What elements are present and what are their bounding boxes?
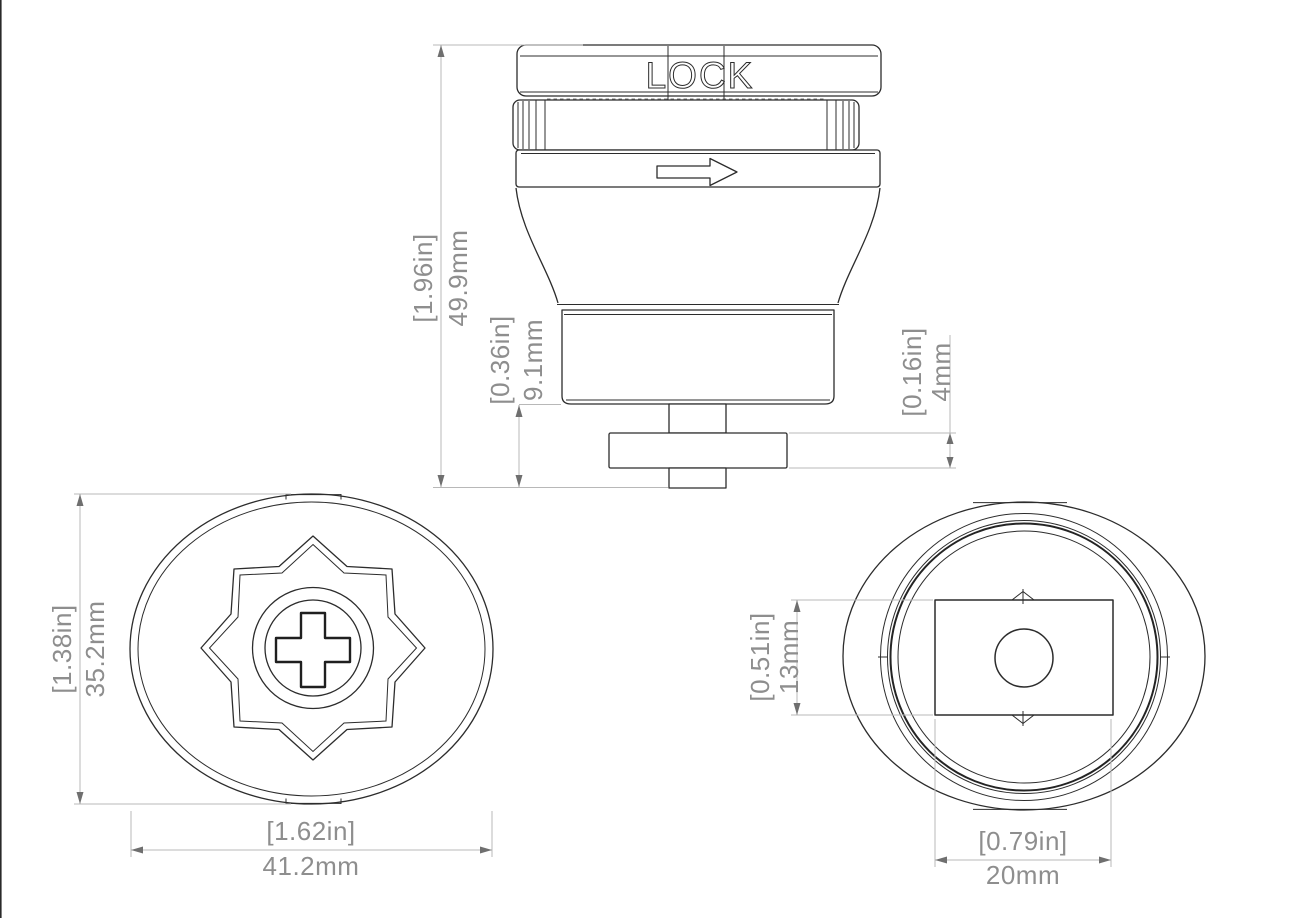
- dim-cam-thickness-mm: 4mm: [926, 342, 956, 401]
- arrow-down: [77, 792, 84, 804]
- taper-neck: [516, 188, 880, 305]
- arrow-down: [947, 457, 954, 468]
- technical-drawing-sheet: LOCK: [0, 0, 1292, 918]
- arrow-up: [794, 600, 801, 612]
- cam-plate: [609, 433, 787, 468]
- arrow-up: [947, 433, 954, 444]
- dim-slot-width-mm: 20mm: [986, 860, 1060, 890]
- shaft: [669, 404, 726, 433]
- dim-face-width-mm: 41.2mm: [263, 851, 360, 881]
- arrow-up: [77, 494, 84, 506]
- back-view: [0.51in] 13mm [0.79in] 20mm: [745, 502, 1205, 890]
- sheet-left-edge: [0, 0, 2, 918]
- dim-slot-height-in: [0.51in]: [745, 612, 775, 701]
- face-outline: [130, 494, 493, 804]
- arrow-right: [1099, 857, 1111, 864]
- arrow-down: [794, 703, 801, 715]
- arrow-left: [935, 857, 947, 864]
- dim-base-height-mm: 9.1mm: [518, 319, 548, 401]
- dim-slot-height-mm: 13mm: [774, 620, 804, 694]
- arrow-down: [516, 475, 523, 487]
- cap-top: LOCK: [517, 45, 881, 96]
- dim-base-height-in: [0.36in]: [485, 315, 515, 404]
- dim-overall-height-mm: 49.9mm: [443, 230, 473, 327]
- cam-shaft-assembly: [609, 404, 787, 488]
- dim-face-width: [1.62in] 41.2mm: [131, 811, 492, 881]
- cylinder-outline: [562, 310, 834, 404]
- drawing-svg: LOCK: [0, 0, 1292, 918]
- outer-oval: [130, 494, 493, 804]
- cam-slot-rect: [935, 600, 1113, 715]
- arrow-left: [131, 847, 143, 854]
- front-view: [1.38in] 35.2mm [1.62in] 41.2mm: [47, 494, 493, 881]
- arrow-up: [516, 405, 523, 417]
- knurl-ring: [513, 99, 859, 150]
- arrow-down: [438, 475, 445, 487]
- dim-slot-width-in: [0.79in]: [978, 826, 1067, 856]
- arrow-up: [438, 45, 445, 57]
- arrow-right: [480, 847, 492, 854]
- dim-face-width-in: [1.62in]: [266, 816, 355, 846]
- knurl-ring-outline: [513, 100, 859, 150]
- dim-base-height: [0.36in] 9.1mm: [485, 315, 561, 487]
- dim-cam-thickness-in: [0.16in]: [897, 327, 927, 416]
- side-view: LOCK: [408, 45, 956, 488]
- base-cylinder: [562, 310, 834, 404]
- dim-face-height-in: [1.38in]: [47, 604, 77, 693]
- dim-face-height-mm: 35.2mm: [80, 601, 110, 698]
- shaft-stub: [669, 468, 726, 488]
- lock-engraving-label: LOCK: [646, 55, 755, 96]
- rotation-band: [516, 150, 880, 187]
- dim-overall-height-in: [1.96in]: [408, 233, 438, 322]
